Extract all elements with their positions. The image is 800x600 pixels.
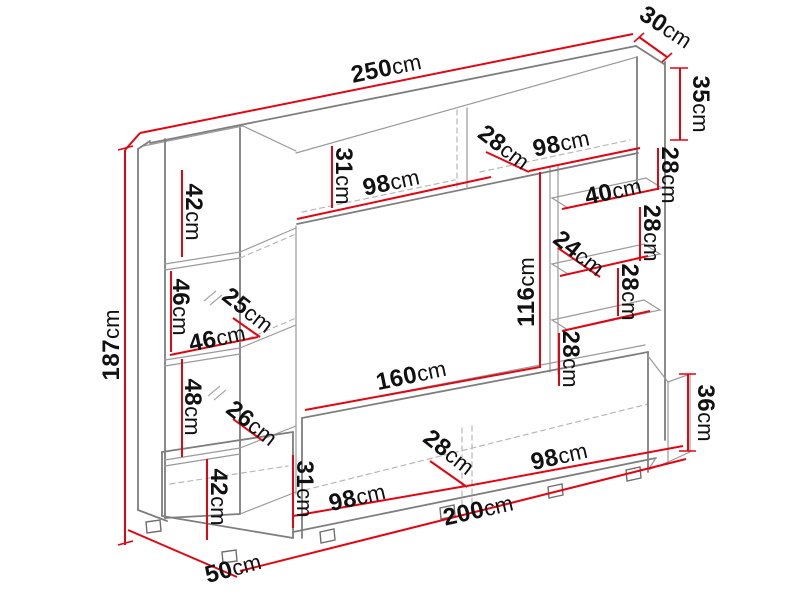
dimension-label-tv-opening-height: 116cm bbox=[513, 257, 540, 327]
dimension-label-gap-right-1: 28cm bbox=[657, 146, 684, 203]
dimension-label-left-lower-section-height: 48cm bbox=[180, 378, 207, 435]
dimension-label-gap-right-3: 28cm bbox=[617, 263, 644, 320]
dimension-label-height-total: 187cm bbox=[98, 310, 125, 381]
diagram-canvas: 250cm30cm35cm28cm40cm28cm24cm28cm28cm116… bbox=[0, 0, 800, 600]
dimension-label-gap-right-4: 28cm bbox=[558, 330, 585, 387]
dimension-label-left-bottom-cabinet-height: 42cm bbox=[206, 468, 233, 525]
dimension-label-stand-front-height: 31cm bbox=[292, 460, 319, 517]
dimension-label-left-upper-cabinet-height: 42cm bbox=[181, 183, 208, 240]
dimension-label-left-glass-section-height: 46cm bbox=[168, 278, 195, 335]
dimension-label-stand-end-height: 36cm bbox=[693, 384, 720, 441]
dimension-label-top-cabinet-height: 31cm bbox=[331, 147, 358, 204]
dimension-label-gap-right-2: 28cm bbox=[639, 204, 666, 261]
furniture-dimension-diagram: 250cm30cm35cm28cm40cm28cm24cm28cm28cm116… bbox=[0, 0, 800, 600]
dimension-label-height-right-top-cabinet: 35cm bbox=[688, 75, 715, 132]
